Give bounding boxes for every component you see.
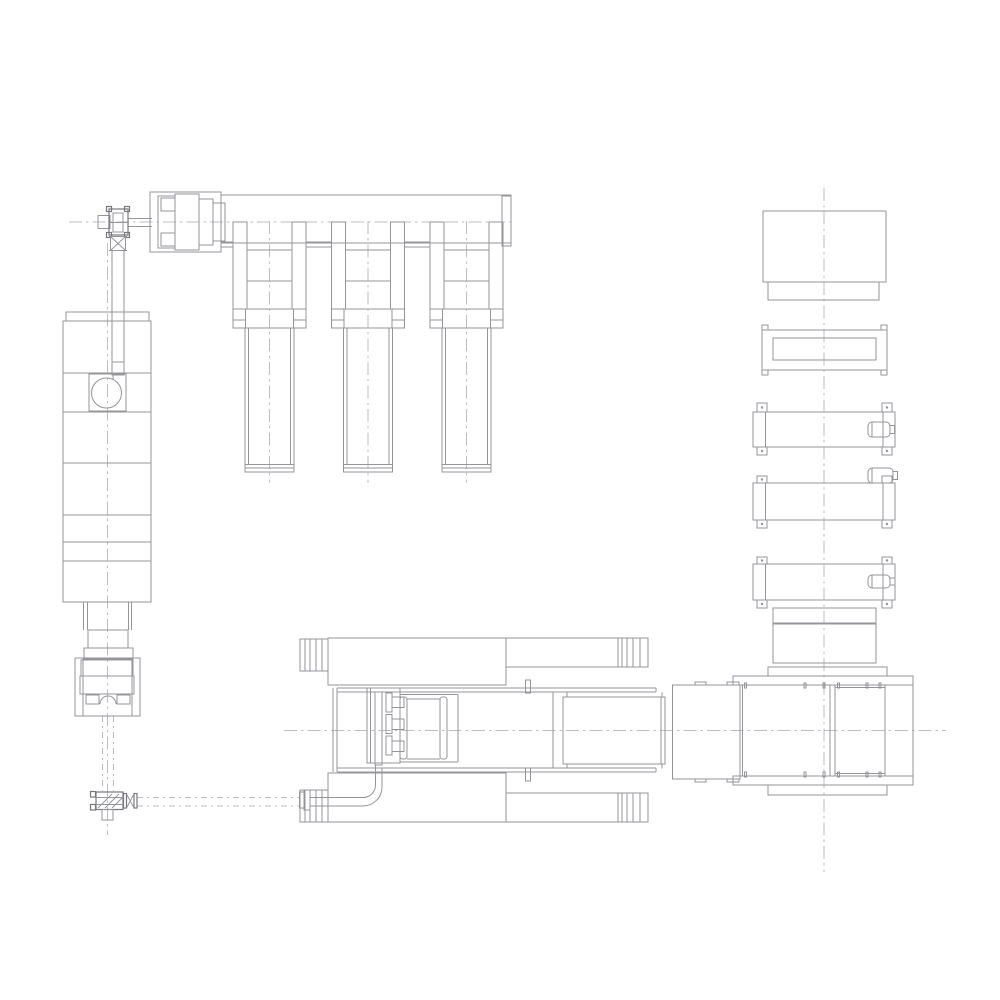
- fin-block-top-right: [618, 638, 640, 667]
- centerlines: [69, 188, 946, 872]
- adapter-block: [673, 682, 741, 782]
- motor-c: [868, 575, 895, 588]
- drive-shaft-coupling-top-left: [98, 207, 152, 363]
- roller-unit-b: [753, 468, 898, 528]
- base-drive-gearbox: [91, 792, 138, 821]
- header-beam: [221, 195, 511, 247]
- fin-block-bottom-right: [618, 793, 640, 822]
- guide-frame: [400, 695, 458, 763]
- fin-block-top-left: [300, 639, 328, 671]
- bevel-coupling-x: [124, 794, 138, 809]
- coupling-mount-bracket: [109, 237, 127, 251]
- transfer-pipe: [300, 765, 383, 811]
- motor-a: [868, 422, 895, 437]
- machinery-layout-drawing: [0, 0, 1000, 1000]
- carriage-with-bolts: [367, 688, 404, 765]
- drawing-canvas: [0, 0, 1000, 1000]
